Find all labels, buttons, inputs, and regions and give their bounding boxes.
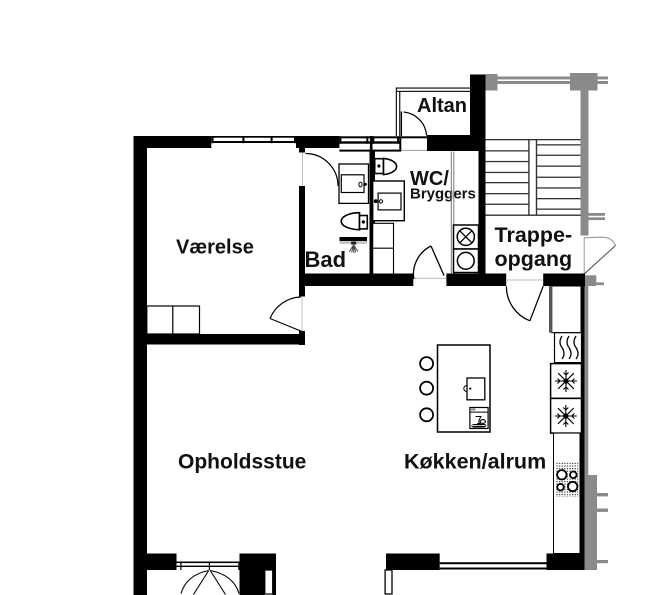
svg-text:Værelse: Værelse xyxy=(176,237,254,259)
svg-text:opgang: opgang xyxy=(495,247,573,271)
svg-text:Bad: Bad xyxy=(305,247,347,272)
svg-text:Trappe-: Trappe- xyxy=(495,223,573,247)
svg-text:Altan: Altan xyxy=(417,95,467,117)
svg-text:Opholdsstue: Opholdsstue xyxy=(178,451,306,474)
svg-text:Køkken/alrum: Køkken/alrum xyxy=(404,450,546,474)
svg-text:Bryggers: Bryggers xyxy=(410,186,476,203)
